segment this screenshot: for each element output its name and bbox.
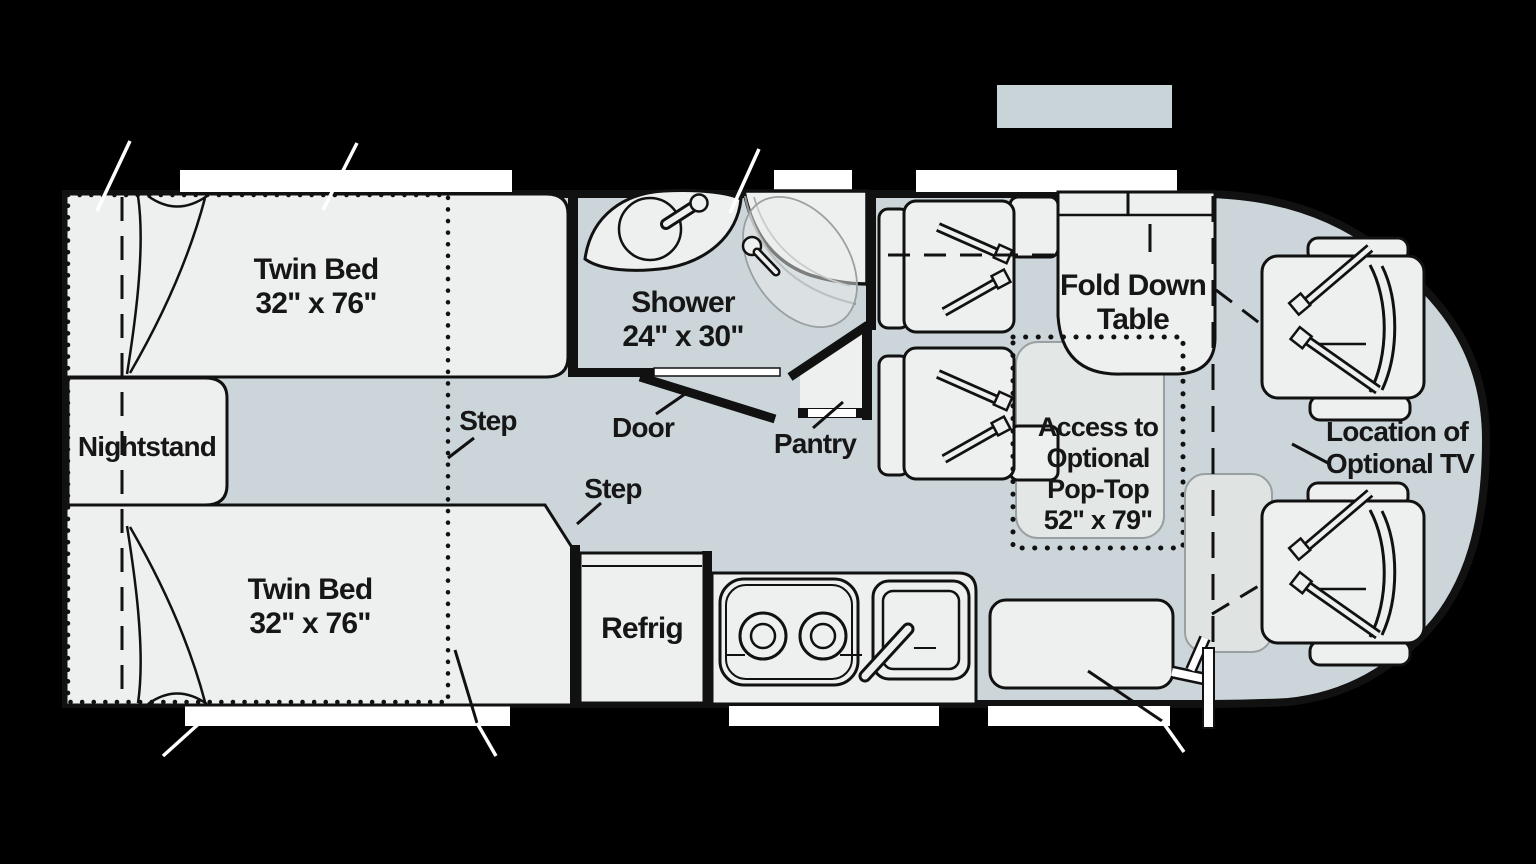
entry-door [1203, 648, 1214, 728]
label-door: Door [612, 412, 675, 443]
leader-line [477, 723, 496, 756]
kitchen-sink [873, 581, 969, 679]
label-twin-bed-top: Twin Bed [254, 253, 379, 286]
wall [568, 190, 578, 377]
label-fold-down-table-2: Table [1097, 303, 1169, 336]
label-twin-bed-bottom: Twin Bed [248, 573, 373, 606]
wall [862, 325, 872, 420]
dinette-seat-front [879, 201, 1014, 332]
label-pop-top-3: Pop-Top [1047, 474, 1149, 504]
passenger-seat [1262, 483, 1424, 665]
label-shower: Shower [631, 286, 736, 319]
window [180, 170, 512, 192]
label-pantry: Pantry [774, 428, 858, 459]
floorplan-stage: Twin Bed 32" x 76" Twin Bed 32" x 76" Ni… [0, 0, 1536, 864]
ottoman-table [990, 600, 1173, 688]
seat-console [1010, 197, 1058, 257]
label-pop-top-1: Access to [1038, 412, 1159, 442]
door-threshold [654, 368, 780, 376]
label-nightstand: Nightstand [78, 431, 216, 462]
label-refrigerator: Refrig [601, 612, 683, 645]
label-twin-bed-top-dims: 32" x 76" [255, 287, 376, 320]
window [774, 170, 852, 192]
window [916, 170, 1177, 192]
label-step-lower: Step [584, 473, 641, 504]
floorplan-canvas: Twin Bed 32" x 76" Twin Bed 32" x 76" Ni… [0, 0, 1536, 864]
driver-seat [1262, 238, 1424, 420]
label-pop-top-4: 52" x 79" [1044, 505, 1153, 535]
dinette-seat-rear [879, 348, 1014, 479]
label-shower-dims: 24" x 30" [622, 320, 743, 353]
label-fold-down-table-1: Fold Down [1060, 269, 1206, 302]
leader-line [1162, 721, 1184, 752]
label-twin-bed-bottom-dims: 32" x 76" [249, 607, 370, 640]
overhead-bunk [997, 85, 1172, 128]
label-optional-tv-1: Location of [1326, 416, 1470, 447]
window [185, 706, 510, 726]
label-step-upper: Step [459, 405, 516, 436]
window [729, 706, 939, 726]
faucet-handle [691, 195, 708, 212]
swivel-zone [1185, 474, 1272, 652]
label-optional-tv-2: Optional TV [1326, 448, 1475, 479]
label-pop-top-2: Optional [1046, 443, 1149, 473]
